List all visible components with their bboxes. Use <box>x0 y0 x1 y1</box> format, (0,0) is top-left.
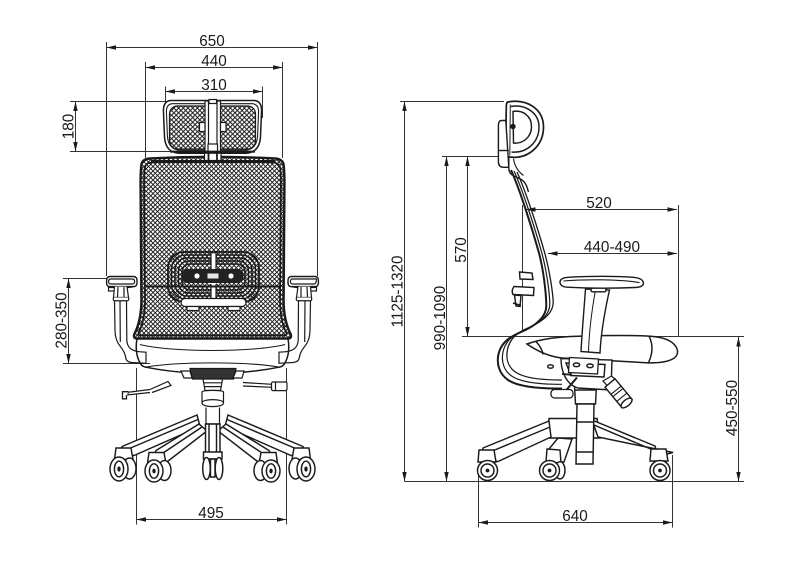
svg-text:570: 570 <box>453 237 470 263</box>
svg-text:640: 640 <box>562 508 588 525</box>
svg-text:310: 310 <box>201 77 227 94</box>
svg-text:495: 495 <box>198 505 224 522</box>
svg-text:440-490: 440-490 <box>584 239 640 256</box>
svg-text:520: 520 <box>586 195 612 212</box>
svg-text:990-1090: 990-1090 <box>432 286 449 351</box>
svg-text:280-350: 280-350 <box>54 292 71 348</box>
svg-text:450-550: 450-550 <box>724 380 741 436</box>
svg-text:1125-1320: 1125-1320 <box>390 255 407 327</box>
svg-text:650: 650 <box>199 33 225 50</box>
svg-text:440: 440 <box>201 53 227 70</box>
svg-text:180: 180 <box>61 114 78 140</box>
